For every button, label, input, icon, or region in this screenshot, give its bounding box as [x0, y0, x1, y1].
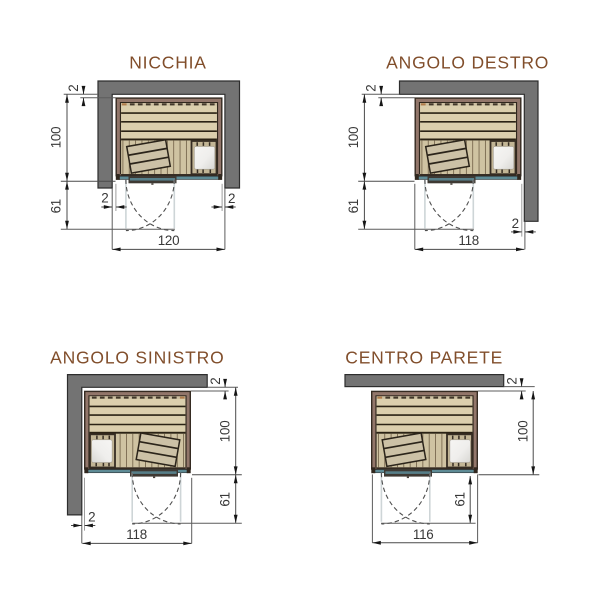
svg-text:2: 2 — [66, 85, 81, 92]
svg-text:61: 61 — [49, 199, 64, 213]
svg-text:118: 118 — [126, 527, 147, 542]
svg-text:2: 2 — [101, 191, 108, 206]
svg-text:61: 61 — [346, 199, 361, 213]
svg-text:2: 2 — [228, 191, 235, 206]
svg-text:CENTRO PARETE: CENTRO PARETE — [345, 348, 503, 368]
svg-text:ANGOLO DESTRO: ANGOLO DESTRO — [386, 53, 549, 73]
svg-text:61: 61 — [453, 492, 468, 506]
svg-text:2: 2 — [208, 378, 223, 385]
svg-text:120: 120 — [158, 233, 180, 248]
svg-text:2: 2 — [364, 85, 379, 92]
svg-text:2: 2 — [512, 216, 519, 231]
svg-text:100: 100 — [515, 421, 530, 443]
svg-text:116: 116 — [413, 527, 434, 542]
svg-text:NICCHIA: NICCHIA — [129, 53, 207, 73]
svg-text:118: 118 — [458, 233, 479, 248]
svg-text:100: 100 — [346, 127, 361, 149]
svg-text:ANGOLO SINISTRO: ANGOLO SINISTRO — [50, 348, 224, 368]
svg-text:100: 100 — [49, 127, 64, 149]
svg-text:61: 61 — [217, 492, 232, 506]
svg-text:100: 100 — [217, 421, 232, 443]
svg-text:2: 2 — [88, 510, 95, 525]
svg-text:2: 2 — [505, 377, 520, 384]
